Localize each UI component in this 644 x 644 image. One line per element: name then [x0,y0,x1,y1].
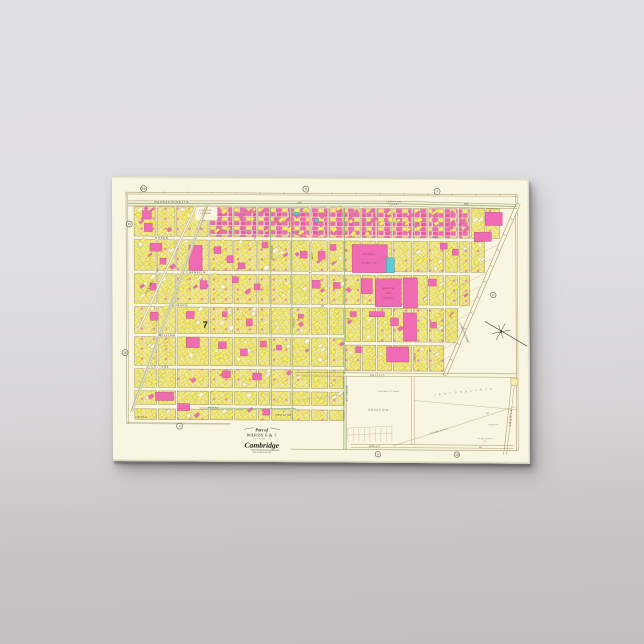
svg-text:COTTAGE: COTTAGE [152,365,170,369]
svg-text:SQUARE: SQUARE [389,203,400,206]
svg-text:EMILY: EMILY [369,444,381,448]
svg-text:CENTRAL: CENTRAL [200,209,213,212]
svg-text:UPTON: UPTON [136,416,148,419]
svg-text:15: 15 [128,222,132,226]
svg-text:7: 7 [203,320,208,330]
svg-text:A Leland heirs: A Leland heirs [488,423,499,426]
svg-text:AUBURN: AUBURN [172,303,188,307]
svg-text:15: 15 [142,187,146,191]
svg-text:CLARK: CLARK [311,253,314,261]
svg-text:SQUARE: SQUARE [200,212,211,215]
svg-text:BROOKLINE: BROOKLINE [345,386,347,403]
svg-text:AVE: AVE [464,203,469,206]
svg-text:13: 13 [455,453,459,457]
svg-text:GREEN: GREEN [155,236,168,240]
svg-text:WARDS 6 & 7: WARDS 6 & 7 [247,433,278,438]
svg-text:ROCKVIEW: ROCKVIEW [369,408,390,412]
svg-text:17: 17 [492,293,496,297]
svg-text:Cambridge: Cambridge [245,441,280,450]
svg-text:PERRY: PERRY [208,407,220,410]
svg-text:MAGAZINE: MAGAZINE [270,246,273,260]
svg-text:MASSACHUSETTS: MASSACHUSETTS [155,200,190,204]
svg-text:SIDNEY: SIDNEY [413,354,415,364]
svg-text:WILLIAM: WILLIAM [159,333,175,337]
svg-text:AVE: AVE [298,202,303,205]
svg-text:PEARL: PEARL [292,319,295,328]
svg-text:PACIFIC: PACIFIC [370,374,386,378]
svg-text:16: 16 [123,351,127,355]
svg-text:FRANKLIN: FRANKLIN [187,270,206,274]
